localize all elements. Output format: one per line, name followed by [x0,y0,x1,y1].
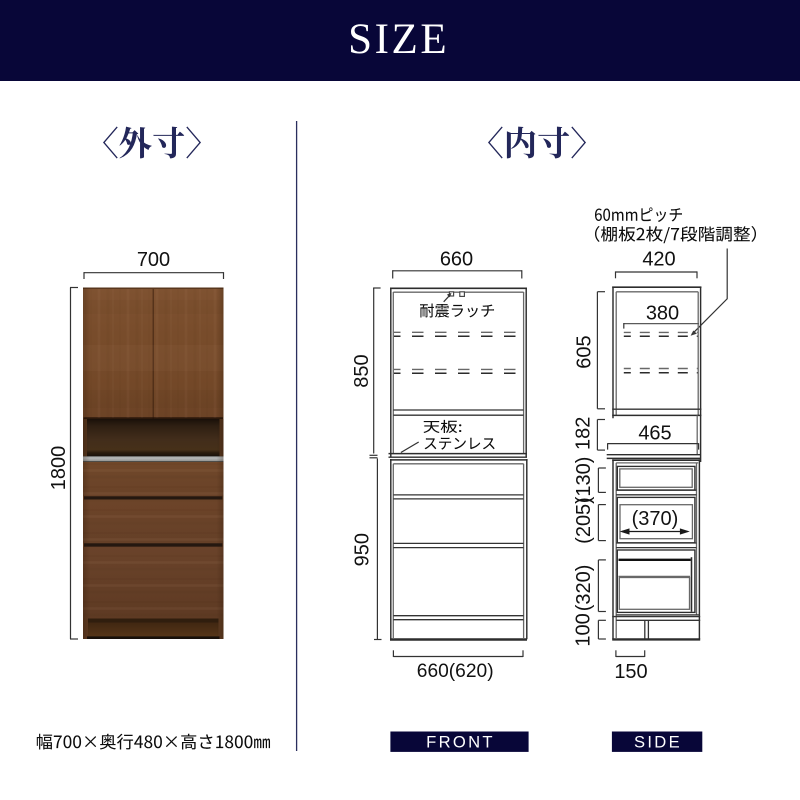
svg-text:605: 605 [574,335,596,368]
svg-text:SIDE: SIDE [634,733,682,752]
svg-text:(370): (370) [632,508,679,530]
svg-text:380: 380 [646,303,679,325]
svg-text:(205): (205) [573,497,595,544]
svg-text:182: 182 [573,417,595,450]
svg-text:(130): (130) [573,457,595,504]
svg-text:1800: 1800 [48,446,70,491]
svg-text:150: 150 [614,661,647,683]
svg-text:700: 700 [137,249,170,271]
svg-text:660: 660 [440,249,473,271]
svg-text:FRONT: FRONT [426,733,495,752]
svg-text:950: 950 [351,533,373,566]
svg-text:100: 100 [573,613,595,646]
svg-text:420: 420 [642,249,675,271]
svg-text:SIZE: SIZE [348,16,449,63]
svg-text:465: 465 [638,422,671,444]
svg-text:660(620): 660(620) [417,661,494,682]
svg-text:850: 850 [351,354,373,387]
svg-text:(320): (320) [573,565,595,612]
